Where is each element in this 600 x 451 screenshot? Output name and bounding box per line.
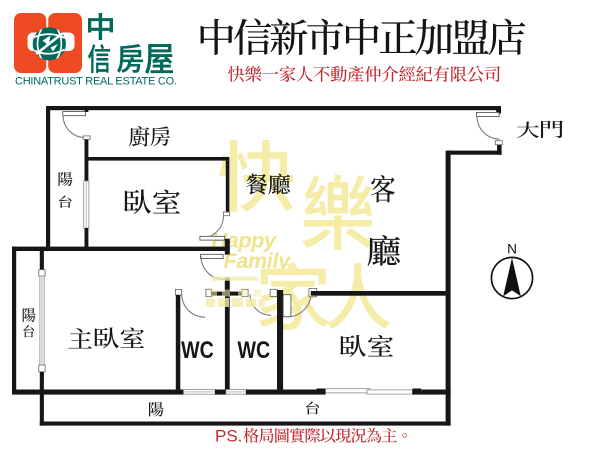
- svg-text:N: N: [507, 242, 517, 257]
- svg-text:WC: WC: [237, 336, 270, 364]
- svg-text:CHINATRUST REAL ESTATE CO.: CHINATRUST REAL ESTATE CO.: [15, 76, 177, 88]
- svg-text:WC: WC: [181, 336, 214, 364]
- svg-text:PS.: PS.: [215, 427, 242, 446]
